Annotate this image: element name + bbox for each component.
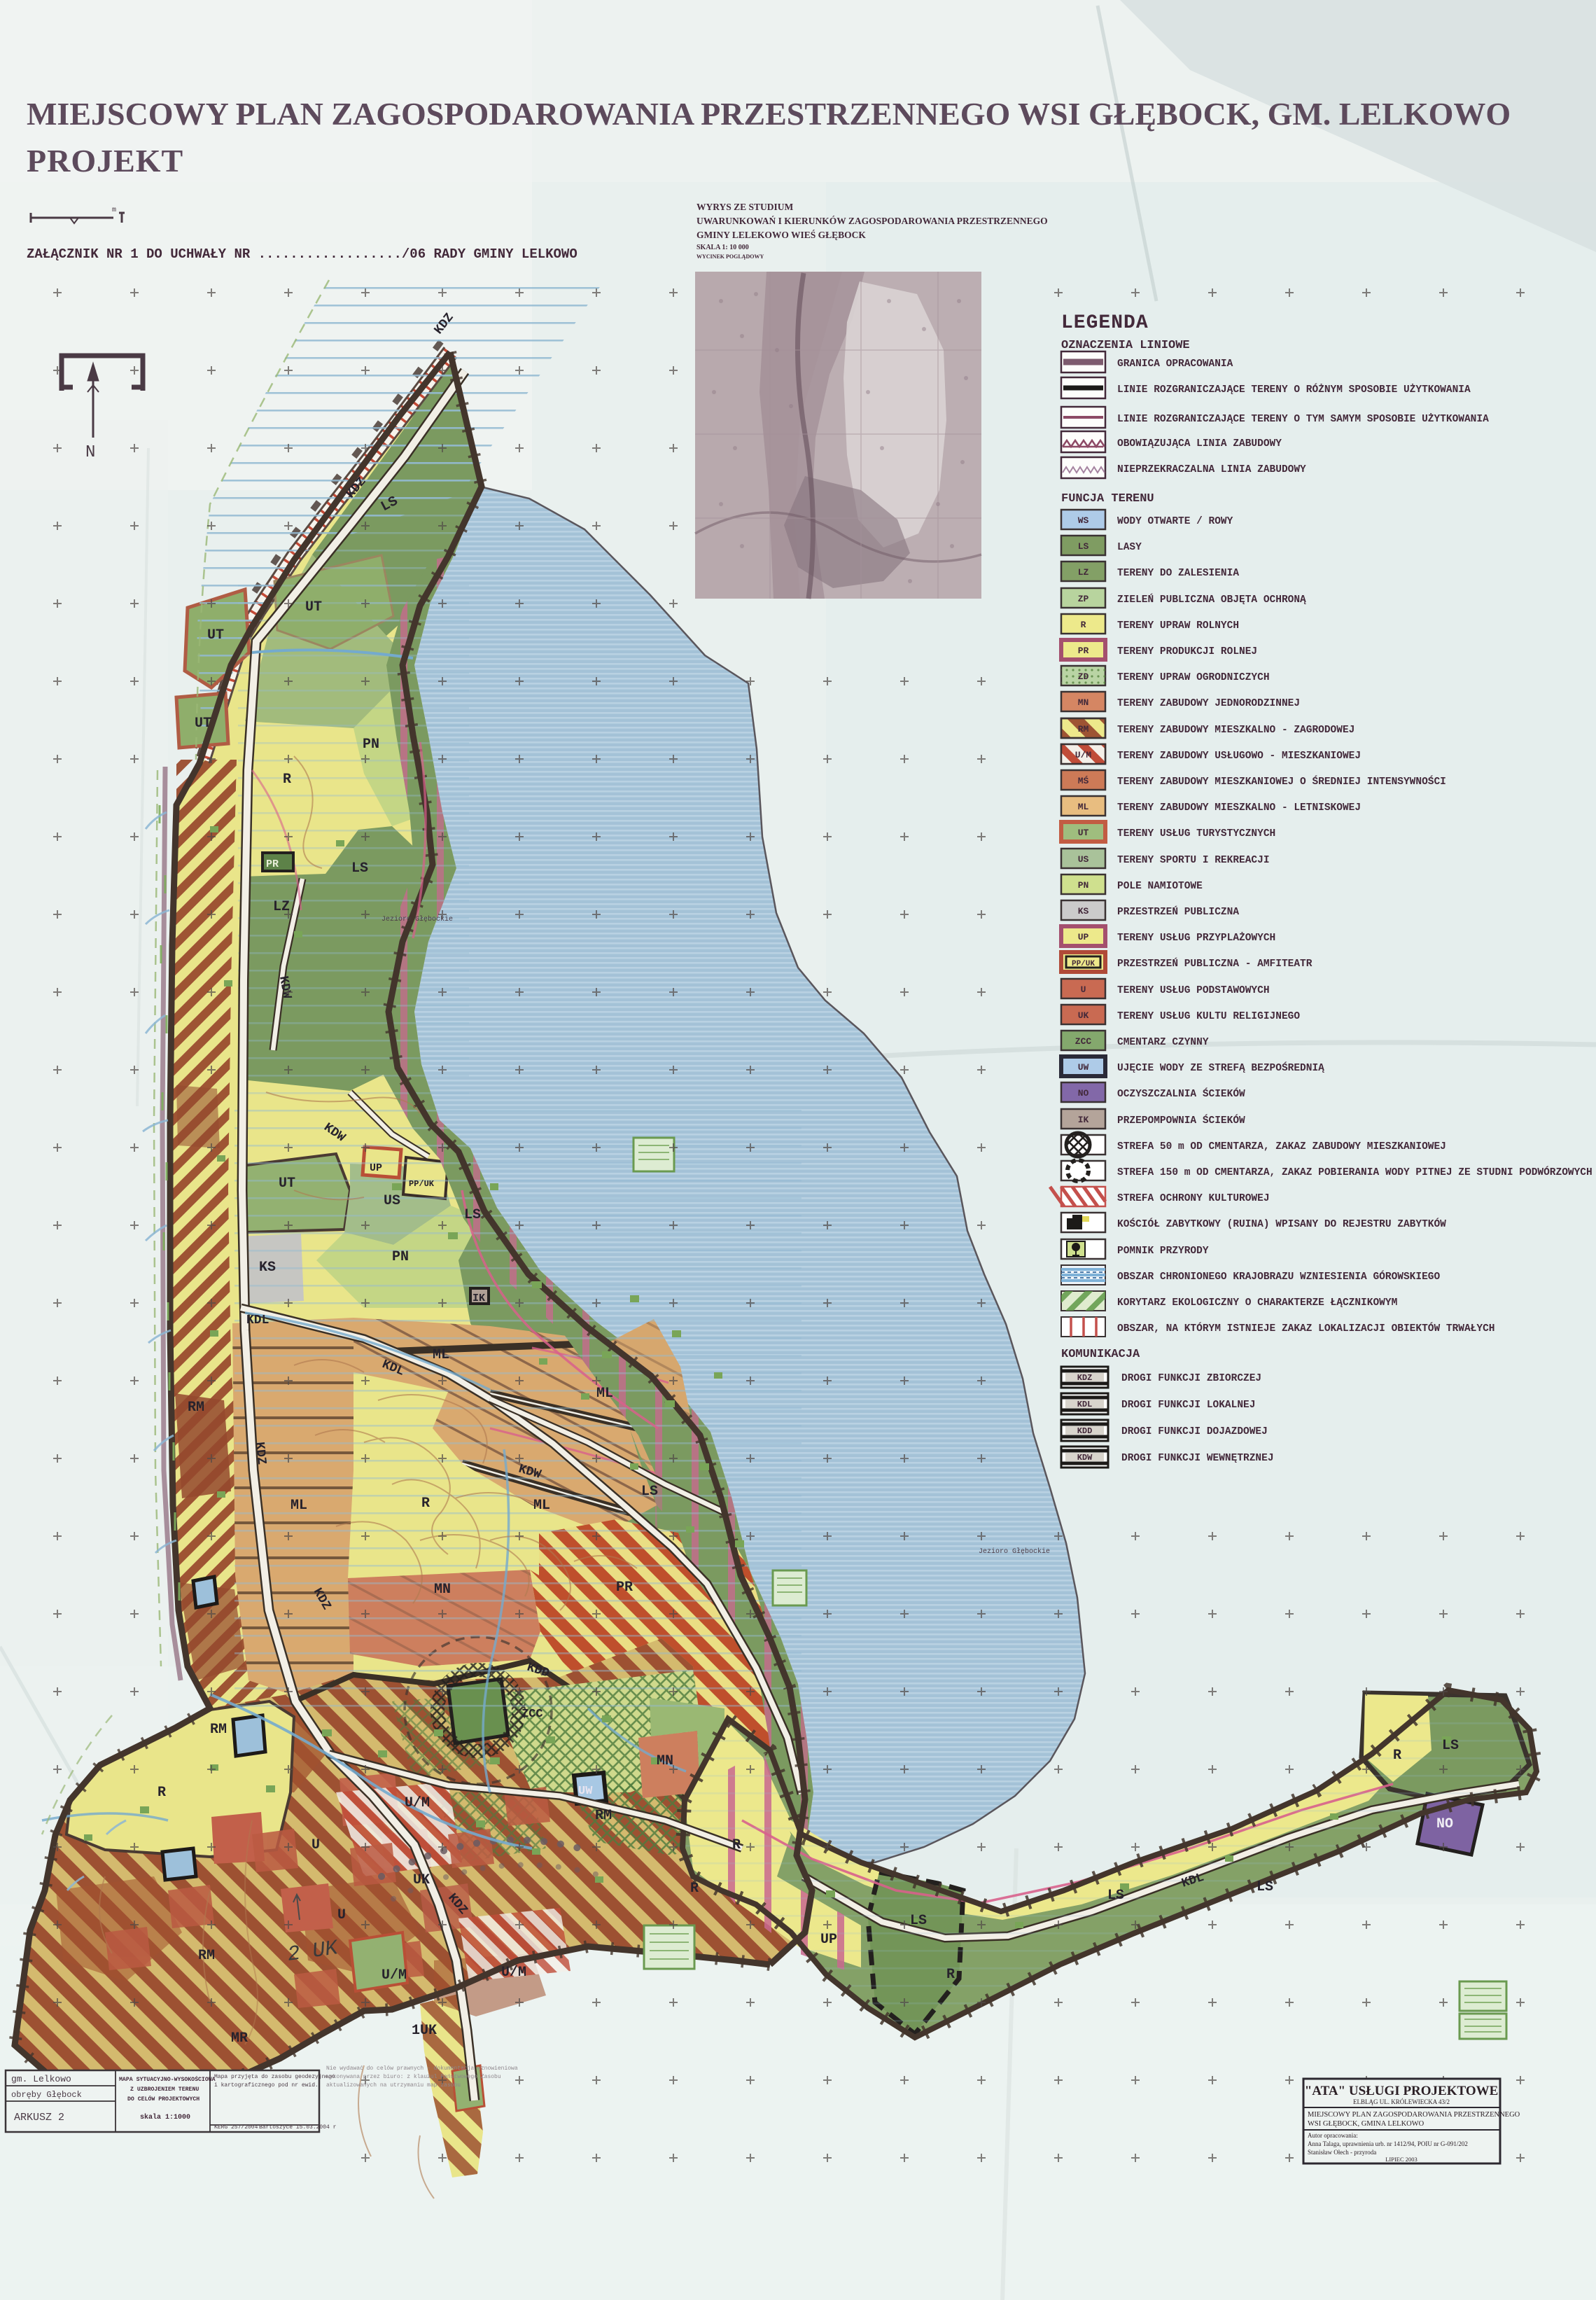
svg-text:UP: UP <box>1078 932 1089 942</box>
svg-text:R: R <box>1081 620 1086 630</box>
svg-text:ML: ML <box>1078 802 1089 812</box>
svg-text:U/M: U/M <box>1075 750 1092 760</box>
svg-text:UW: UW <box>1078 1062 1089 1073</box>
svg-text:RM: RM <box>210 1722 227 1738</box>
svg-text:TERENY USŁUG PODSTAWOWYCH: TERENY USŁUG PODSTAWOWYCH <box>1117 985 1270 996</box>
svg-text:U: U <box>1081 984 1086 995</box>
svg-text:MR: MR <box>231 2030 248 2047</box>
svg-text:OBSZAR, NA KTÓRYM ISTNIEJE ZAK: OBSZAR, NA KTÓRYM ISTNIEJE ZAKAZ LOKALIZ… <box>1117 1322 1495 1334</box>
svg-text:R: R <box>732 1837 741 1853</box>
svg-text:Nie wydawać do celów prawnych: Nie wydawać do celów prawnych - dokument… <box>326 2065 518 2072</box>
svg-text:UT: UT <box>195 716 211 732</box>
svg-text:US: US <box>1078 854 1089 865</box>
svg-text:obręby Głębock: obręby Głębock <box>11 2090 82 2100</box>
svg-text:Autor opracowania:: Autor opracowania: <box>1308 2132 1358 2139</box>
svg-text:STREFA 150 m OD CMENTARZA, ZA: STREFA 150 m OD CMENTARZA, ZAKAZ POBIERA… <box>1117 1166 1592 1178</box>
svg-text:TERENY USŁUG KULTU RELIGIJNEGO: TERENY USŁUG KULTU RELIGIJNEGO <box>1117 1011 1300 1022</box>
svg-text:MIEJSCOWY PLAN ZAGOSPODAROWANI: MIEJSCOWY PLAN ZAGOSPODAROWANIA PRZESTRZ… <box>27 96 1511 132</box>
svg-text:U: U <box>337 1907 346 1923</box>
svg-text:UP: UP <box>370 1162 382 1174</box>
svg-text:LS: LS <box>1256 1879 1273 1895</box>
svg-text:STREFA OCHRONY KULTUROWEJ: STREFA OCHRONY KULTUROWEJ <box>1117 1193 1270 1204</box>
svg-text:UT: UT <box>305 599 322 615</box>
svg-text:OBOWIĄZUJĄCA LINIA ZABUDOWY: OBOWIĄZUJĄCA LINIA ZABUDOWY <box>1117 438 1282 449</box>
svg-text:UWARUNKOWAŃ I KIERUNKÓW ZAGOSP: UWARUNKOWAŃ I KIERUNKÓW ZAGOSPODAROWANIA… <box>696 216 1048 226</box>
svg-text:OZNACZENIA LINIOWE: OZNACZENIA LINIOWE <box>1061 339 1190 352</box>
svg-text:ELBLĄG UL. KRÓLEWIECKA 43/2: ELBLĄG UL. KRÓLEWIECKA 43/2 <box>1353 2098 1450 2105</box>
svg-text:PRZESTRZEŃ PUBLICZNA: PRZESTRZEŃ PUBLICZNA <box>1117 905 1239 918</box>
svg-text:ML: ML <box>533 1498 550 1514</box>
svg-text:LS: LS <box>1078 541 1089 552</box>
svg-text:Anna Talaga, uprawnienia urb.: Anna Talaga, uprawnienia urb. nr 1412/94… <box>1308 2140 1468 2147</box>
svg-text:KDD: KDD <box>1077 1426 1093 1436</box>
svg-text:m: m <box>112 207 116 214</box>
svg-text:skala 1:1000: skala 1:1000 <box>140 2113 190 2121</box>
svg-text:R: R <box>690 1881 699 1897</box>
svg-text:aktualizowanych na utrzymaniu: aktualizowanych na utrzymaniu map zasobu <box>326 2082 461 2089</box>
svg-text:GRANICA OPRACOWANIA: GRANICA OPRACOWANIA <box>1117 358 1233 370</box>
svg-text:KDZ: KDZ <box>1077 1373 1093 1383</box>
svg-text:TERENY DO ZALESIENIA: TERENY DO ZALESIENIA <box>1117 568 1239 579</box>
svg-text:UW: UW <box>578 1785 593 1798</box>
svg-text:ML: ML <box>596 1386 613 1402</box>
svg-text:PN: PN <box>392 1249 409 1265</box>
svg-text:i kartograficznego pod nr ewid: i kartograficznego pod nr ewid. <box>214 2082 318 2089</box>
svg-text:KDL: KDL <box>246 1313 269 1327</box>
svg-text:ZIELEŃ PUBLICZNA OBJĘTA OCHRON: ZIELEŃ PUBLICZNA OBJĘTA OCHRONĄ <box>1117 593 1306 606</box>
svg-text:Mapa przyjęta do zasobu geodez: Mapa przyjęta do zasobu geodezyjnego <box>214 2074 335 2080</box>
svg-text:KS: KS <box>259 1260 276 1276</box>
svg-text:OBSZAR CHRONIONEGO KRAJOBRAZU: OBSZAR CHRONIONEGO KRAJOBRAZU WZNIESIENI… <box>1117 1270 1440 1283</box>
svg-text:LZ: LZ <box>273 899 290 915</box>
svg-text:LS: LS <box>464 1207 481 1223</box>
svg-text:MAPA SYTUACYJNO-WYSOKOŚCIOWA: MAPA SYTUACYJNO-WYSOKOŚCIOWA <box>119 2075 216 2083</box>
svg-text:LS: LS <box>641 1484 658 1500</box>
svg-text:Z UZBROJENIEM TERENU: Z UZBROJENIEM TERENU <box>130 2086 199 2093</box>
svg-text:TERENY USŁUG TURYSTYCZNYCH: TERENY USŁUG TURYSTYCZNYCH <box>1117 828 1275 839</box>
svg-text:KDL: KDL <box>1077 1400 1093 1409</box>
svg-text:POLE NAMIOTOWE: POLE NAMIOTOWE <box>1117 881 1203 892</box>
svg-text:LINIE ROZGRANICZAJĄCE TERENY O: LINIE ROZGRANICZAJĄCE TERENY O TYM SAMYM… <box>1117 413 1489 425</box>
svg-text:UT: UT <box>279 1176 295 1192</box>
svg-text:"ATA" USŁUGI PROJEKTOWE: "ATA" USŁUGI PROJEKTOWE <box>1305 2084 1499 2098</box>
svg-text:ML: ML <box>433 1347 449 1363</box>
svg-text:DROGI FUNKCJI ZBIORCZEJ: DROGI FUNKCJI ZBIORCZEJ <box>1121 1373 1261 1384</box>
svg-text:UJĘCIE WODY ZE STREFĄ BEZPOŚRE: UJĘCIE WODY ZE STREFĄ BEZPOŚREDNIĄ <box>1117 1061 1324 1074</box>
svg-text:PR: PR <box>1078 646 1089 656</box>
svg-text:MN: MN <box>1078 697 1089 708</box>
svg-text:TERENY ZABUDOWY MIESZKALNO - Z: TERENY ZABUDOWY MIESZKALNO - ZAGRODOWEJ <box>1117 725 1354 736</box>
svg-text:LINIE ROZGRANICZAJĄCE TERENY O: LINIE ROZGRANICZAJĄCE TERENY O RÓŻNYM SP… <box>1117 383 1471 396</box>
svg-text:LS: LS <box>910 1913 927 1929</box>
svg-text:PRZESTRZEŃ PUBLICZNA - AMFITEA: PRZESTRZEŃ PUBLICZNA - AMFITEATR <box>1117 957 1312 970</box>
svg-text:ARKUSZ 2: ARKUSZ 2 <box>14 2112 64 2124</box>
svg-text:TERENY UPRAW OGRODNICZYCH: TERENY UPRAW OGRODNICZYCH <box>1117 672 1270 683</box>
svg-text:IK: IK <box>1078 1115 1089 1125</box>
svg-text:LS: LS <box>1107 1888 1124 1904</box>
svg-text:R: R <box>421 1496 430 1512</box>
svg-text:KS: KS <box>1078 906 1089 916</box>
svg-text:RM: RM <box>188 1400 204 1416</box>
svg-text:KOMUNIKACJA: KOMUNIKACJA <box>1061 1348 1140 1361</box>
svg-text:NO: NO <box>1078 1088 1089 1099</box>
svg-text:NO: NO <box>1436 1816 1453 1832</box>
svg-text:UP: UP <box>820 1932 837 1948</box>
svg-text:U: U <box>311 1837 320 1853</box>
svg-text:WYRYS ZE STUDIUM: WYRYS ZE STUDIUM <box>696 202 794 212</box>
svg-text:R: R <box>1393 1748 1401 1764</box>
svg-text:ML: ML <box>290 1498 307 1514</box>
svg-text:IK: IK <box>472 1292 485 1304</box>
svg-text:KERG 257/2004: KERG 257/2004 <box>214 2124 258 2131</box>
svg-text:DO CELÓW PROJEKTOWYCH: DO CELÓW PROJEKTOWYCH <box>127 2095 199 2103</box>
svg-text:POMNIK PRZYRODY: POMNIK PRZYRODY <box>1117 1246 1209 1257</box>
svg-text:U/M: U/M <box>381 1967 407 1984</box>
svg-text:LS: LS <box>1442 1738 1459 1754</box>
svg-text:KDZ: KDZ <box>252 1442 268 1465</box>
svg-text:DROGI FUNKCJI WEWNĘTRZNEJ: DROGI FUNKCJI WEWNĘTRZNEJ <box>1121 1453 1274 1464</box>
svg-text:ZCC: ZCC <box>1075 1036 1092 1047</box>
svg-text:LEGENDA: LEGENDA <box>1061 312 1149 334</box>
svg-text:KORYTARZ EKOLOGICZNY O CHARAKT: KORYTARZ EKOLOGICZNY O CHARAKTERZE ŁĄCZN… <box>1117 1297 1397 1309</box>
svg-text:TERENY ZABUDOWY MIESZKANIOWEJ: TERENY ZABUDOWY MIESZKANIOWEJ O ŚREDNIEJ… <box>1117 775 1446 788</box>
svg-text:Stanisław Ołech - przyroda: Stanisław Ołech - przyroda <box>1308 2149 1376 2156</box>
svg-text:TERENY ZABUDOWY JEDNORODZINNEJ: TERENY ZABUDOWY JEDNORODZINNEJ <box>1117 698 1300 709</box>
svg-text:LZ: LZ <box>1078 567 1089 578</box>
svg-text:MN: MN <box>434 1582 451 1598</box>
svg-text:PN: PN <box>363 737 379 753</box>
svg-text:R: R <box>157 1785 166 1801</box>
svg-text:ZD: ZD <box>1078 671 1089 682</box>
svg-text:TERENY SPORTU I REKREACJI: TERENY SPORTU I REKREACJI <box>1117 855 1270 866</box>
svg-text:PR: PR <box>266 858 279 870</box>
svg-text:TERENY USŁUG PRZYPLAŻOWYCH: TERENY USŁUG PRZYPLAŻOWYCH <box>1117 932 1275 944</box>
svg-text:MŚ: MŚ <box>1078 776 1089 786</box>
svg-text:U/M: U/M <box>405 1795 430 1811</box>
svg-text:TERENY ZABUDOWY MIESZKALNO - L: TERENY ZABUDOWY MIESZKALNO - LETNISKOWEJ <box>1117 802 1361 814</box>
svg-text:TERENY ZABUDOWY USŁUGOWO - MIE: TERENY ZABUDOWY USŁUGOWO - MIESZKANIOWEJ <box>1117 751 1361 762</box>
svg-text:U/M: U/M <box>501 1965 526 1981</box>
svg-text:wykonywana przez biuro: z klau: wykonywana przez biuro: z klauzul Państw… <box>326 2074 501 2080</box>
svg-text:PP/UK: PP/UK <box>409 1179 435 1189</box>
svg-text:PP/UK: PP/UK <box>1072 960 1095 968</box>
svg-text:WODY OTWARTE / ROWY: WODY OTWARTE / ROWY <box>1117 516 1233 527</box>
svg-text:WYCINEK POGLĄDOWY: WYCINEK POGLĄDOWY <box>696 253 764 260</box>
svg-text:ZCC: ZCC <box>521 1708 543 1721</box>
svg-text:KDW: KDW <box>1077 1453 1093 1463</box>
svg-text:RM: RM <box>595 1808 612 1824</box>
svg-text:MN: MN <box>657 1753 673 1769</box>
svg-text:PR: PR <box>616 1580 633 1596</box>
svg-text:STREFA 50 m OD CMENTARZA, ZAKA: STREFA 50 m OD CMENTARZA, ZAKAZ ZABUDOWY… <box>1117 1141 1446 1152</box>
svg-text:Bartoszyce 15.03.2004 r: Bartoszyce 15.03.2004 r <box>259 2124 337 2131</box>
svg-text:N: N <box>85 443 95 462</box>
svg-text:DROGI FUNKCJI DOJAZDOWEJ: DROGI FUNKCJI DOJAZDOWEJ <box>1121 1426 1268 1437</box>
svg-text:ZP: ZP <box>1078 594 1089 604</box>
svg-text:TERENY PRODUKCJI ROLNEJ: TERENY PRODUKCJI ROLNEJ <box>1117 646 1257 657</box>
svg-text:RM: RM <box>198 1948 215 1964</box>
svg-text:US: US <box>384 1193 400 1209</box>
svg-text:RM: RM <box>1078 724 1089 734</box>
svg-text:UK: UK <box>1078 1010 1089 1021</box>
svg-text:KOŚCIÓŁ ZABYTKOWY (RUINA) WPIS: KOŚCIÓŁ ZABYTKOWY (RUINA) WPISANY DO REJ… <box>1117 1218 1446 1230</box>
svg-text:UT: UT <box>1078 828 1089 838</box>
svg-text:NIEPRZEKRACZALNA LINIA ZABUDOW: NIEPRZEKRACZALNA LINIA ZABUDOWY <box>1117 464 1306 475</box>
svg-text:FUNCJA TERENU: FUNCJA TERENU <box>1061 492 1154 506</box>
svg-text:1UK: 1UK <box>412 2023 437 2039</box>
svg-text:UT: UT <box>207 627 224 643</box>
svg-text:PROJEKT: PROJEKT <box>27 143 183 179</box>
svg-text:PN: PN <box>1078 880 1089 891</box>
svg-text:PRZEPOMPOWNIA ŚCIEKÓW: PRZEPOMPOWNIA ŚCIEKÓW <box>1117 1114 1245 1127</box>
svg-text:CMENTARZ CZYNNY: CMENTARZ CZYNNY <box>1117 1037 1209 1048</box>
svg-text:DROGI FUNKCJI LOKALNEJ: DROGI FUNKCJI LOKALNEJ <box>1121 1400 1255 1411</box>
svg-text:WS: WS <box>1078 515 1089 526</box>
svg-text:R: R <box>946 1967 955 1983</box>
svg-text:ZAŁĄCZNIK NR 1 DO UCHWAŁY NR .: ZAŁĄCZNIK NR 1 DO UCHWAŁY NR ...........… <box>27 246 577 262</box>
svg-text:SKALA 1: 10 000: SKALA 1: 10 000 <box>696 244 749 251</box>
svg-text:WSI GŁĘBOCK, GMINA LELKOWO: WSI GŁĘBOCK, GMINA LELKOWO <box>1308 2120 1424 2128</box>
svg-text:gm. Lelkowo: gm. Lelkowo <box>11 2074 71 2084</box>
svg-text:Jezioro Głębockie: Jezioro Głębockie <box>979 1547 1050 1556</box>
svg-text:R: R <box>283 772 291 788</box>
svg-text:MIEJSCOWY PLAN ZAGOSPODAROWANI: MIEJSCOWY PLAN ZAGOSPODAROWANIA PRZESTRZ… <box>1308 2111 1520 2119</box>
svg-text:TERENY UPRAW ROLNYCH: TERENY UPRAW ROLNYCH <box>1117 620 1239 632</box>
svg-text:LS: LS <box>351 860 368 877</box>
svg-text:LIPIEC 2003: LIPIEC 2003 <box>1385 2156 1417 2163</box>
svg-text:GMINY LELEKOWO WIEŚ GŁĘBOCK: GMINY LELEKOWO WIEŚ GŁĘBOCK <box>696 230 866 240</box>
svg-text:UK: UK <box>413 1872 430 1888</box>
svg-text:LASY: LASY <box>1117 542 1142 553</box>
svg-text:OCZYSZCZALNIA ŚCIEKÓW: OCZYSZCZALNIA ŚCIEKÓW <box>1117 1087 1245 1100</box>
